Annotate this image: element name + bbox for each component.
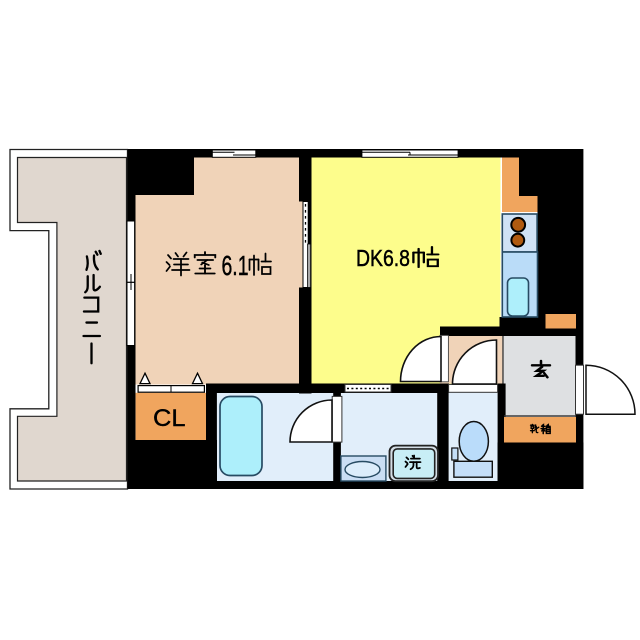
svg-text:DK6.8: DK6.8	[356, 245, 410, 271]
svg-text:6.1: 6.1	[222, 250, 249, 281]
svg-text:CL: CL	[153, 405, 186, 432]
